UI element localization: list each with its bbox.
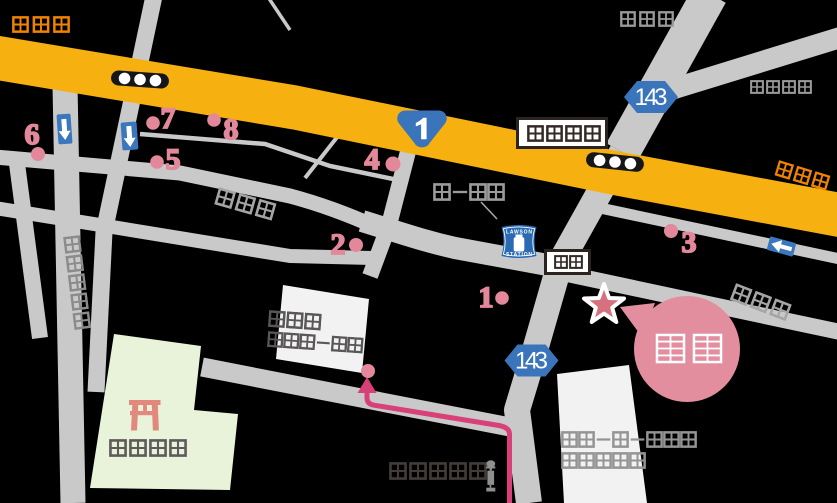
svg-text:3: 3 bbox=[682, 226, 697, 259]
svg-text:6: 6 bbox=[25, 118, 40, 151]
svg-text:STATION: STATION bbox=[506, 252, 532, 258]
svg-text:7: 7 bbox=[161, 102, 176, 135]
svg-text:5: 5 bbox=[166, 143, 181, 176]
svg-text:8: 8 bbox=[224, 113, 239, 146]
svg-text:2: 2 bbox=[331, 228, 346, 261]
svg-text:143: 143 bbox=[515, 348, 548, 375]
svg-text:1: 1 bbox=[479, 281, 494, 314]
svg-text:143: 143 bbox=[635, 84, 668, 111]
svg-text:4: 4 bbox=[365, 143, 380, 176]
